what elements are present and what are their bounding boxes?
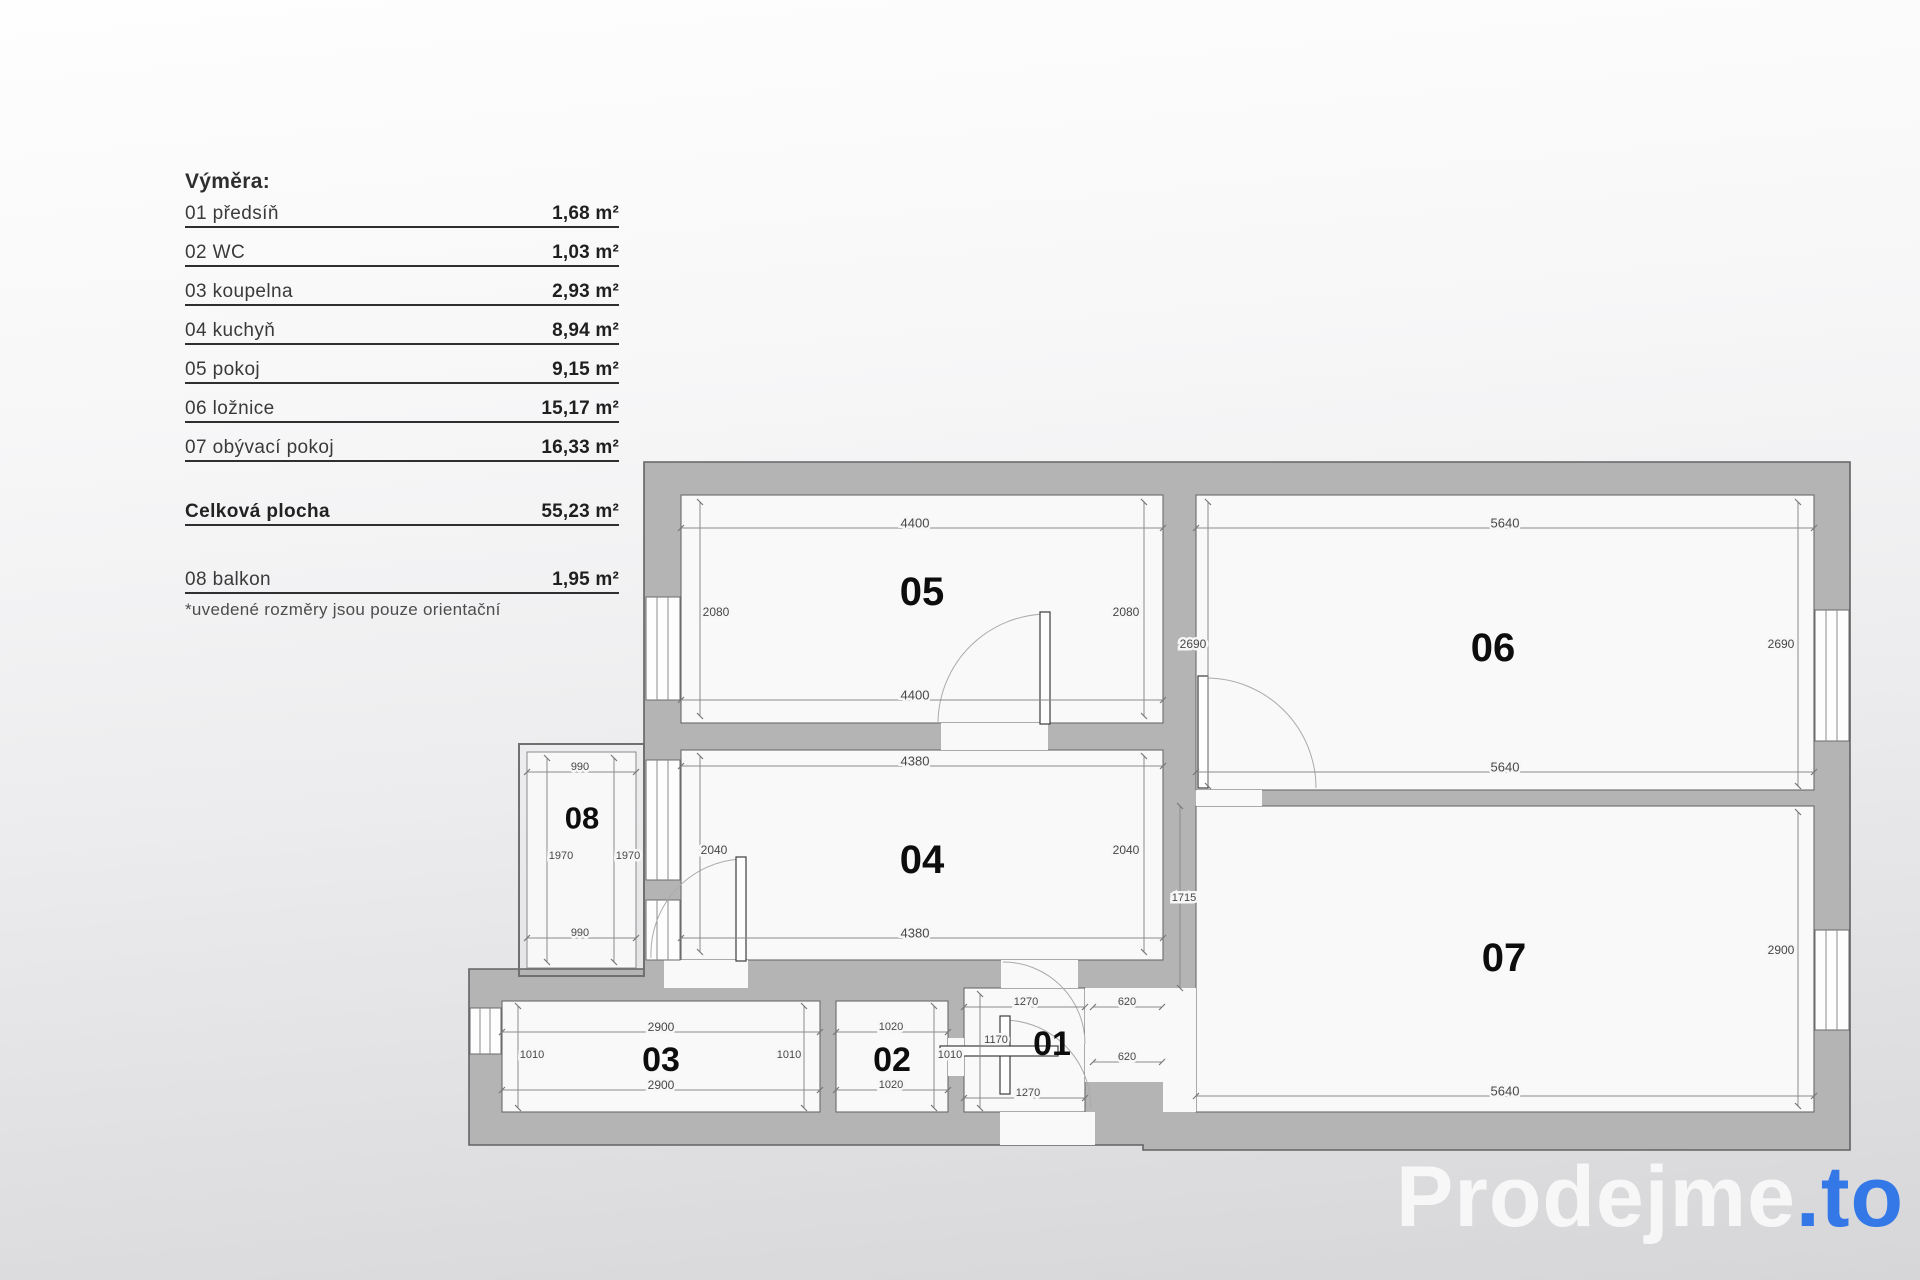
window-room-03 xyxy=(470,1008,501,1054)
room-number-label: 08 xyxy=(565,801,599,836)
dimension-label: 2080 xyxy=(1113,605,1140,619)
dimension-label: 4400 xyxy=(901,688,930,703)
dimension-label: 1270 xyxy=(1016,1087,1040,1099)
dimension-label: 5640 xyxy=(1491,760,1520,775)
logo-brand-text: Prodejme xyxy=(1396,1149,1796,1245)
dimension-label: 2900 xyxy=(648,1078,675,1092)
dimension-label: 4380 xyxy=(901,926,930,941)
dimension-label: 2040 xyxy=(1113,843,1140,857)
dimension-label: 1010 xyxy=(777,1049,801,1061)
dimension-label: 4400 xyxy=(901,516,930,531)
door-opening-06 xyxy=(1196,790,1262,806)
dimension-label: 2040 xyxy=(701,843,728,857)
dimension-label: 1270 xyxy=(1014,996,1038,1008)
dimension-label: 990 xyxy=(571,927,589,939)
dimension-label: 1020 xyxy=(879,1079,903,1091)
hall-passage-corner xyxy=(1163,988,1196,1112)
window-room-05 xyxy=(646,597,680,700)
page: { "legend": { "title": "Výměra:", "rows"… xyxy=(0,0,1920,1280)
window-room-07 xyxy=(1815,930,1849,1030)
dimension-label: 1010 xyxy=(520,1049,544,1061)
room-number-label: 01 xyxy=(1033,1025,1071,1063)
door-opening-04-03 xyxy=(664,960,748,988)
window-room-04-balcony-door xyxy=(646,760,680,880)
floor-plan: 4400208020804400564026902690564043802040… xyxy=(0,0,1920,1280)
dimension-label: 2080 xyxy=(703,605,730,619)
entrance-opening xyxy=(1000,1112,1095,1145)
dimension-label: 1020 xyxy=(879,1021,903,1033)
window-room-06 xyxy=(1815,610,1849,741)
dimension-label: 5640 xyxy=(1491,1084,1520,1099)
prodejme-to-logo: Prodejme.to xyxy=(1396,1148,1904,1247)
dimension-label: 2690 xyxy=(1768,637,1795,651)
room-number-label: 06 xyxy=(1471,626,1516,670)
dimension-label: 1010 xyxy=(938,1049,962,1061)
dimension-label: 2900 xyxy=(648,1020,675,1034)
door-opening-05-04 xyxy=(941,723,1048,750)
dimension-label: 2690 xyxy=(1180,637,1207,651)
room-number-label: 04 xyxy=(900,838,945,882)
logo-tld-text: .to xyxy=(1796,1149,1904,1245)
dimension-label: 620 xyxy=(1118,1051,1136,1063)
dimension-label: 5640 xyxy=(1491,516,1520,531)
room-number-label: 05 xyxy=(900,570,945,614)
dimension-label: 1970 xyxy=(616,850,640,862)
room-number-label: 07 xyxy=(1482,936,1527,980)
dimension-label: 990 xyxy=(571,761,589,773)
dimension-label: 2900 xyxy=(1768,943,1795,957)
dimension-label: 1715 xyxy=(1172,892,1196,904)
room-number-label: 02 xyxy=(873,1041,911,1079)
dimension-label: 1970 xyxy=(549,850,573,862)
room-number-label: 03 xyxy=(642,1041,680,1079)
door-opening-01-04 xyxy=(1001,960,1078,988)
dimension-label: 1170 xyxy=(984,1034,1008,1046)
dimension-label: 620 xyxy=(1118,996,1136,1008)
dimension-label: 4380 xyxy=(901,754,930,769)
